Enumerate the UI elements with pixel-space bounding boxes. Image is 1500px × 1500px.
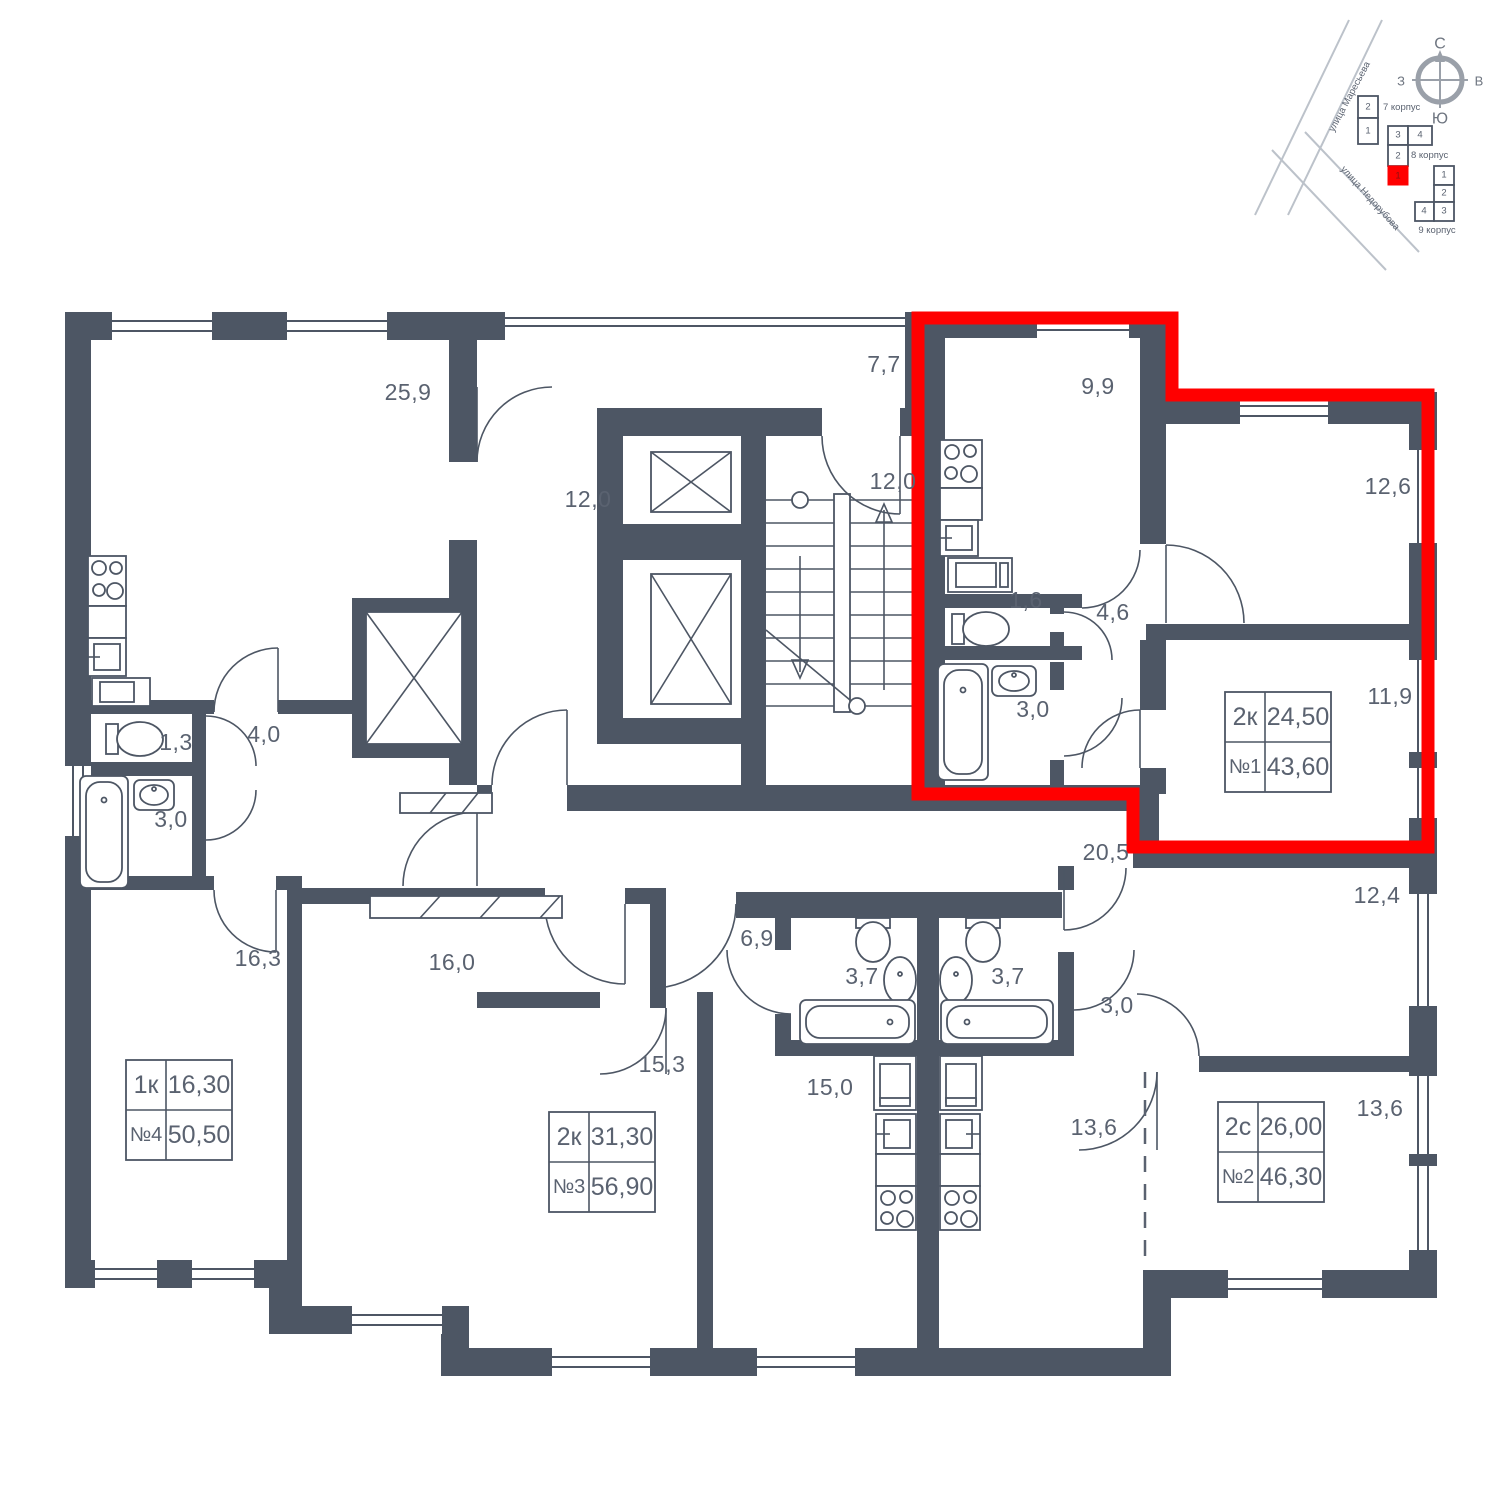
window	[352, 1306, 442, 1334]
door-arc	[214, 648, 278, 712]
building-label: 9 корпус	[1418, 225, 1456, 236]
window	[1409, 1076, 1437, 1154]
apartment-total-area: 56,90	[591, 1173, 654, 1201]
stove-icon	[940, 440, 982, 488]
kitchen-counter	[940, 1154, 980, 1186]
window	[1240, 398, 1328, 424]
room-area-label: 12,6	[1365, 473, 1412, 499]
section-number: 1	[1441, 170, 1446, 181]
site-building-9: 1 2 4 3 9 корпус	[1415, 166, 1456, 236]
window	[287, 312, 387, 340]
toilet-icon	[856, 918, 890, 962]
washbasin-icon	[992, 666, 1036, 696]
door-arc	[1166, 545, 1244, 623]
window	[552, 1348, 650, 1376]
stove-icon	[876, 1186, 916, 1230]
room-area-label: 25,9	[385, 379, 432, 405]
bathtub-icon	[800, 1000, 915, 1044]
toilet-icon	[952, 612, 1009, 646]
window	[1409, 894, 1437, 1006]
washbasin-icon	[940, 957, 972, 1003]
window	[1228, 1270, 1322, 1298]
washing-machine-icon	[874, 1056, 916, 1110]
sink-icon	[940, 1114, 980, 1154]
room-area-label: 1,6	[1009, 587, 1042, 613]
section-number: 4	[1421, 206, 1426, 217]
kitchen-counter	[88, 606, 126, 638]
section-number: 1	[1365, 126, 1370, 137]
apartment-total-area: 50,50	[168, 1121, 231, 1149]
apartment-table-3[interactable]: 2к 31,30 №3 56,90	[549, 1112, 655, 1212]
section-number: 2	[1441, 188, 1446, 199]
compass-south: Ю	[1432, 111, 1448, 128]
door-arc	[403, 812, 477, 886]
room-area-label: 3,7	[991, 963, 1024, 989]
duct-shaft-icon	[366, 612, 462, 744]
wardrobe-icon	[370, 896, 562, 918]
compass: С Ю З В	[1397, 36, 1483, 128]
apartment-number: №1	[1229, 756, 1262, 778]
sink-icon	[940, 520, 978, 556]
bathtub-icon	[80, 776, 128, 888]
room-area-label: 3,0	[154, 806, 187, 832]
bathtub-icon	[938, 664, 988, 780]
toilet-icon	[106, 722, 163, 756]
kitchen-counter	[876, 1154, 916, 1186]
door-arc	[477, 387, 552, 462]
window	[192, 1260, 254, 1288]
floor-plan-drawing: 25,9 12,0 7,7 12,0 9,9 12,6 1,6 4,6 3,0 …	[0, 0, 1500, 1500]
bathtub-icon	[941, 1000, 1053, 1044]
elevator-icon	[651, 574, 731, 704]
room-area-label: 7,7	[867, 351, 900, 377]
room-area-label: 20,5	[1083, 839, 1130, 865]
compass-east: В	[1475, 74, 1484, 89]
apartment-type: 2с	[1225, 1113, 1251, 1141]
building-label: 7 корпус	[1383, 102, 1421, 113]
washing-machine-icon	[948, 558, 1012, 592]
floor-plan-page: 25,9 12,0 7,7 12,0 9,9 12,6 1,6 4,6 3,0 …	[0, 0, 1500, 1500]
room-area-label: 3,0	[1100, 992, 1133, 1018]
room-area-label: 9,9	[1081, 373, 1114, 399]
section-number: 2	[1365, 102, 1370, 113]
section-number: 1	[1395, 171, 1400, 182]
window	[1409, 1166, 1437, 1250]
room-area-label: 13,6	[1357, 1095, 1404, 1121]
section-number: 3	[1441, 206, 1446, 217]
room-area-label: 4,6	[1096, 599, 1129, 625]
room-area-label: 11,9	[1367, 683, 1412, 709]
kitchen-counter	[940, 488, 982, 520]
window	[112, 312, 212, 340]
washbasin-icon	[884, 957, 916, 1003]
door-arc	[492, 710, 567, 785]
door-arc	[727, 950, 791, 1014]
room-area-label: 3,7	[845, 963, 878, 989]
apartment-total-area: 43,60	[1267, 753, 1330, 781]
sink-icon	[88, 638, 126, 676]
room-area-label: 12,0	[870, 468, 917, 494]
room-area-label: 12,0	[565, 486, 612, 512]
apartment-number: №4	[130, 1124, 163, 1146]
apartment-type: 2к	[1233, 703, 1259, 731]
section-number: 2	[1395, 151, 1400, 162]
apartment-number: №2	[1222, 1166, 1255, 1188]
apartment-number: №3	[553, 1176, 586, 1198]
stairs	[766, 492, 917, 714]
apartment-rooms-area: 24,50	[1267, 703, 1330, 731]
apartment-total-area: 46,30	[1260, 1163, 1323, 1191]
apartment-rooms-area: 31,30	[591, 1123, 654, 1151]
section-number: 4	[1417, 130, 1422, 141]
apartment-rooms-area: 26,00	[1260, 1113, 1323, 1141]
elevator-icon	[651, 452, 731, 512]
door-arc	[1137, 994, 1199, 1056]
room-area-label: 12,4	[1354, 882, 1401, 908]
apartment-type: 1к	[134, 1071, 160, 1099]
site-plan: улица Маресьева улица Недорубова 2 1 7 к…	[1255, 20, 1483, 270]
toilet-icon	[966, 918, 1000, 962]
compass-north: С	[1434, 36, 1446, 53]
room-area-label: 16,0	[429, 949, 476, 975]
room-area-label: 4,0	[247, 721, 280, 747]
room-area-label: 6,9	[740, 925, 773, 951]
building-label: 8 корпус	[1411, 150, 1449, 161]
room-area-label: 15,0	[807, 1074, 854, 1100]
section-number: 3	[1395, 130, 1400, 141]
door-arc	[1064, 698, 1122, 756]
washing-machine-icon	[92, 678, 150, 706]
room-area-label: 16,3	[235, 945, 282, 971]
compass-west: З	[1397, 74, 1405, 89]
apartment-table-4[interactable]: 1к 16,30 №4 50,50	[126, 1060, 232, 1160]
stove-icon	[88, 556, 126, 606]
stove-icon	[940, 1186, 980, 1230]
wardrobe-icon	[400, 793, 492, 813]
window	[95, 1260, 157, 1288]
washing-machine-icon	[940, 1056, 982, 1110]
apartment-type: 2к	[557, 1123, 583, 1151]
door-arc	[1082, 710, 1140, 768]
door-arc	[214, 890, 276, 952]
window	[757, 1348, 855, 1376]
apartment-table-1[interactable]: 2к 24,50 №1 43,60	[1225, 692, 1331, 792]
apartment-rooms-area: 16,30	[168, 1071, 231, 1099]
room-area-label: 15,3	[639, 1051, 686, 1077]
sink-icon	[876, 1114, 916, 1154]
room-area-label: 1,3	[159, 729, 192, 755]
door-arc	[206, 790, 256, 840]
room-area-label: 13,6	[1071, 1114, 1118, 1140]
room-area-label: 3,0	[1016, 696, 1049, 722]
apartment-table-2[interactable]: 2с 26,00 №2 46,30	[1218, 1102, 1324, 1202]
